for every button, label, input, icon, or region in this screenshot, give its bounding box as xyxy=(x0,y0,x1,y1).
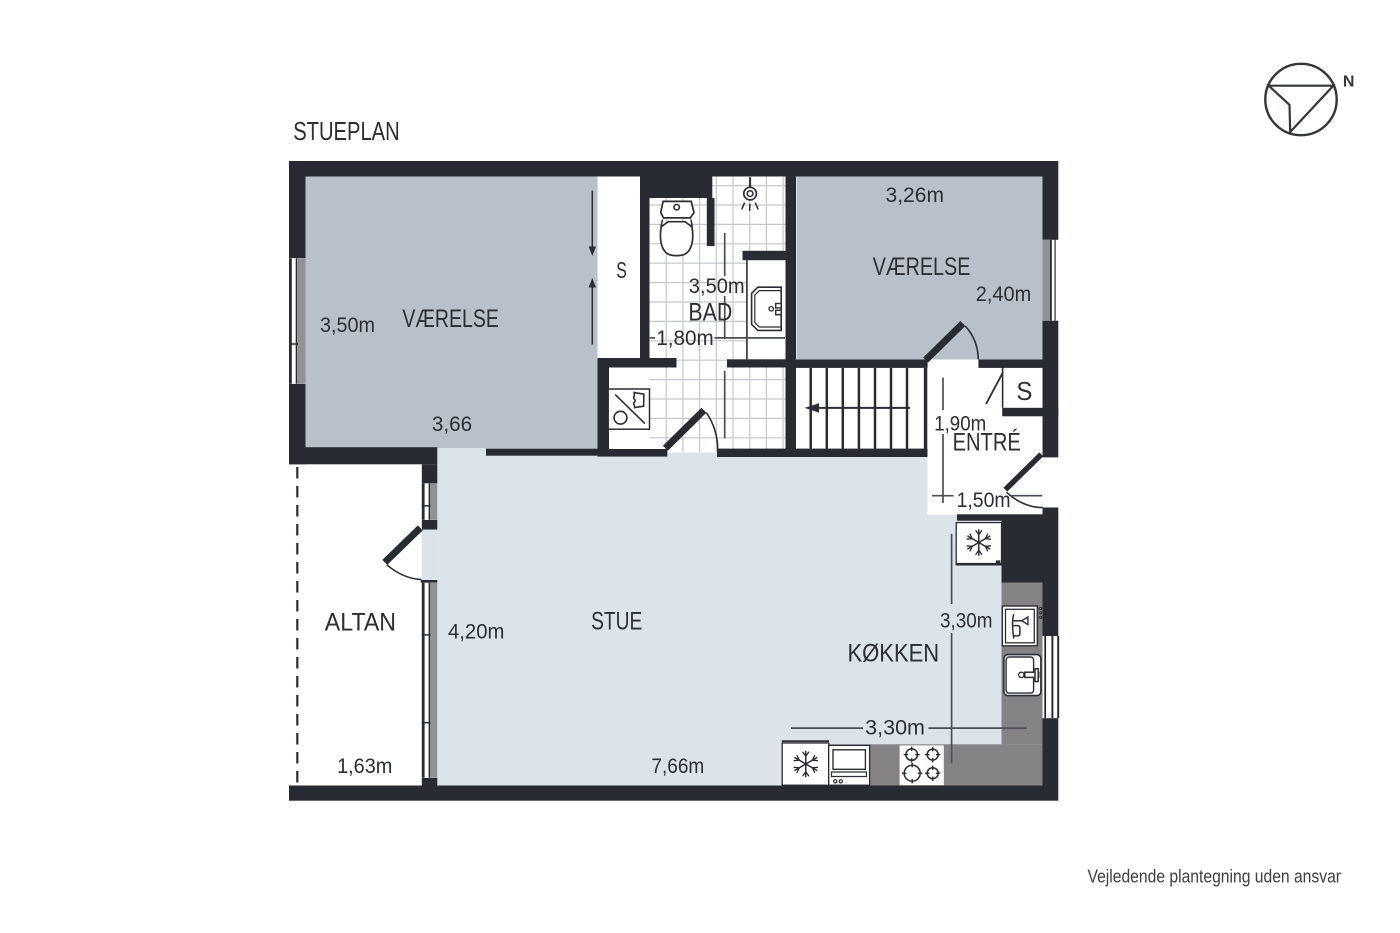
svg-text:3,50m: 3,50m xyxy=(689,275,745,298)
svg-text:N: N xyxy=(1343,73,1355,90)
svg-text:BAD: BAD xyxy=(688,299,732,327)
svg-text:1,80m: 1,80m xyxy=(656,327,714,350)
svg-text:VÆRELSE: VÆRELSE xyxy=(402,305,499,333)
svg-text:3,26m: 3,26m xyxy=(886,184,945,207)
svg-text:3,30m: 3,30m xyxy=(940,610,993,633)
svg-text:S: S xyxy=(616,257,627,283)
svg-text:2,40m: 2,40m xyxy=(976,283,1031,306)
svg-text:VÆRELSE: VÆRELSE xyxy=(873,253,971,281)
svg-text:STUEPLAN: STUEPLAN xyxy=(293,116,400,146)
svg-text:ALTAN: ALTAN xyxy=(325,609,396,637)
svg-text:1,50m: 1,50m xyxy=(957,489,1011,512)
svg-text:STUE: STUE xyxy=(591,608,642,636)
svg-text:4,20m: 4,20m xyxy=(448,620,504,643)
svg-text:3,50m: 3,50m xyxy=(320,314,375,337)
svg-text:3,30m: 3,30m xyxy=(865,717,925,740)
svg-text:KØKKEN: KØKKEN xyxy=(848,640,940,668)
svg-text:Vejledende plantegning uden an: Vejledende plantegning uden ansvar xyxy=(1088,867,1342,887)
svg-text:1,90m: 1,90m xyxy=(934,413,986,436)
svg-text:S: S xyxy=(1016,376,1032,406)
svg-text:3,66: 3,66 xyxy=(432,413,472,436)
svg-text:7,66m: 7,66m xyxy=(651,755,704,778)
svg-text:1,63m: 1,63m xyxy=(337,755,392,778)
